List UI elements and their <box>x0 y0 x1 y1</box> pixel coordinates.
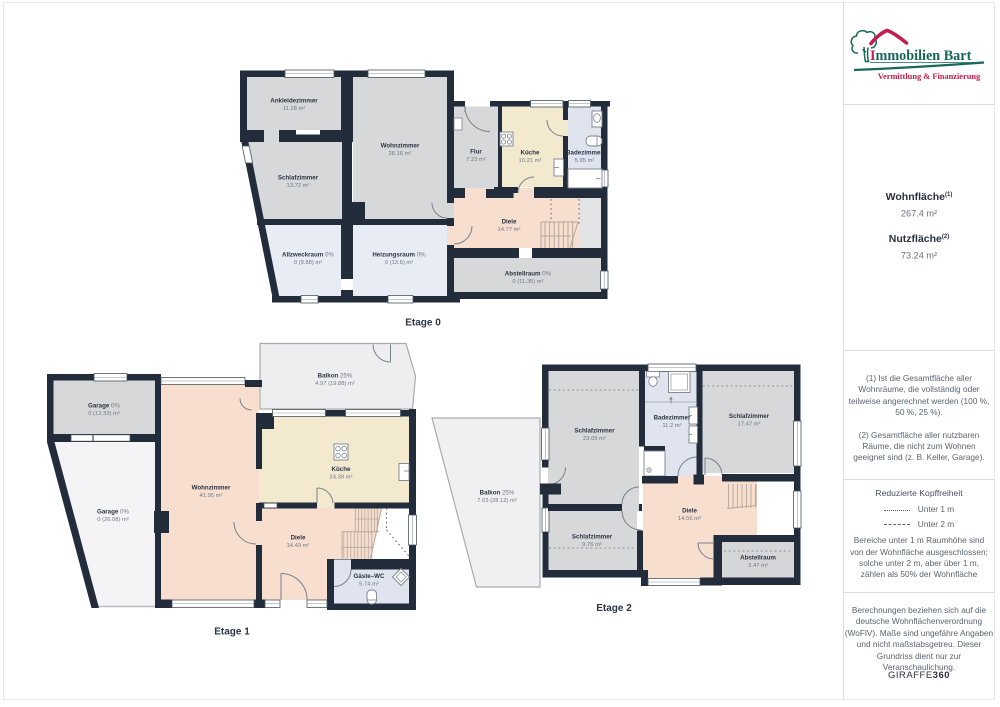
svg-text:14.77 m²: 14.77 m² <box>498 227 521 233</box>
svg-text:Diele: Diele <box>682 508 697 515</box>
svg-text:26.16 m²: 26.16 m² <box>389 151 412 157</box>
svg-text:9.76 m²: 9.76 m² <box>582 542 602 548</box>
svg-text:Abstellraum: Abstellraum <box>740 555 776 562</box>
svg-text:0 (11.35) m²: 0 (11.35) m² <box>512 279 543 285</box>
svg-text:Garage 0%: Garage 0% <box>97 509 129 516</box>
svg-text:Heizungsraum 0%: Heizungsraum 0% <box>372 252 426 259</box>
svg-text:Garage 0%: Garage 0% <box>88 403 120 410</box>
svg-text:Wohnzimmer: Wohnzimmer <box>192 485 231 492</box>
svg-text:23.05 m²: 23.05 m² <box>583 436 606 442</box>
svg-text:0 (26.08) m²: 0 (26.08) m² <box>97 517 129 523</box>
svg-text:Diele: Diele <box>502 219 517 226</box>
svg-text:Badezimmer: Badezimmer <box>654 415 691 422</box>
svg-text:Allzweckraum 0%: Allzweckraum 0% <box>282 252 334 259</box>
svg-text:41.95 m²: 41.95 m² <box>200 493 223 499</box>
svg-text:5.74 m²: 5.74 m² <box>359 581 379 587</box>
svg-text:73.24 m²: 73.24 m² <box>901 251 937 261</box>
svg-text:267.4 m²: 267.4 m² <box>901 209 937 219</box>
svg-text:11.2 m²: 11.2 m² <box>662 423 681 429</box>
svg-text:7.03 (28.12) m²: 7.03 (28.12) m² <box>477 498 517 504</box>
svg-text:Etage 1: Etage 1 <box>214 627 250 638</box>
svg-text:Schlafzimmer: Schlafzimmer <box>729 413 770 420</box>
svg-text:17.47 m²: 17.47 m² <box>738 421 761 427</box>
svg-text:11.28 m²: 11.28 m² <box>283 106 306 112</box>
svg-text:13.72 m²: 13.72 m² <box>287 183 310 189</box>
svg-text:Flur: Flur <box>470 149 482 156</box>
svg-text:14.49 m²: 14.49 m² <box>287 543 310 549</box>
svg-text:10.21 m²: 10.21 m² <box>519 158 542 164</box>
svg-text:Schlafzimmer: Schlafzimmer <box>574 428 615 435</box>
svg-text:Küche: Küche <box>332 466 351 473</box>
svg-text:Nutzfläche(2): Nutzfläche(2) <box>889 233 949 245</box>
svg-text:4.97 (19.88) m²: 4.97 (19.88) m² <box>315 381 355 387</box>
svg-text:Ankleidezimmer: Ankleidezimmer <box>270 98 318 105</box>
svg-text:Küche: Küche <box>521 150 540 157</box>
svg-text:Gäste–WC: Gäste–WC <box>354 573 385 580</box>
svg-text:Schlafzimmer: Schlafzimmer <box>572 534 613 541</box>
svg-text:Badezimmer: Badezimmer <box>566 150 603 157</box>
svg-text:Balkon 25%: Balkon 25% <box>318 373 353 380</box>
svg-text:Vermittlung & Finanzierung: Vermittlung & Finanzierung <box>878 72 981 81</box>
svg-text:Etage 0: Etage 0 <box>405 318 441 329</box>
svg-text:3.47 m²: 3.47 m² <box>748 563 768 569</box>
svg-text:Etage 2: Etage 2 <box>596 603 632 614</box>
svg-text:14.56 m²: 14.56 m² <box>678 516 701 522</box>
svg-text:Balkon 25%: Balkon 25% <box>480 490 515 497</box>
svg-text:Wohnzimmer: Wohnzimmer <box>381 143 420 150</box>
svg-text:24.39 m²: 24.39 m² <box>330 474 353 480</box>
svg-text:Wohnfläche(1): Wohnfläche(1) <box>886 191 953 203</box>
svg-text:0 (13.6) m²: 0 (13.6) m² <box>385 260 413 266</box>
svg-text:0 (9.88) m²: 0 (9.88) m² <box>294 260 322 266</box>
svg-text:Abstellraum 0%: Abstellraum 0% <box>505 271 552 278</box>
svg-text:Diele: Diele <box>291 535 306 542</box>
svg-text:Immobilien Bart: Immobilien Bart <box>870 48 972 64</box>
svg-text:5.95 m²: 5.95 m² <box>575 158 595 164</box>
svg-text:Schlafzimmer: Schlafzimmer <box>278 175 319 182</box>
svg-text:7.23 m²: 7.23 m² <box>466 157 486 163</box>
svg-text:0 (12.33) m²: 0 (12.33) m² <box>88 411 120 417</box>
